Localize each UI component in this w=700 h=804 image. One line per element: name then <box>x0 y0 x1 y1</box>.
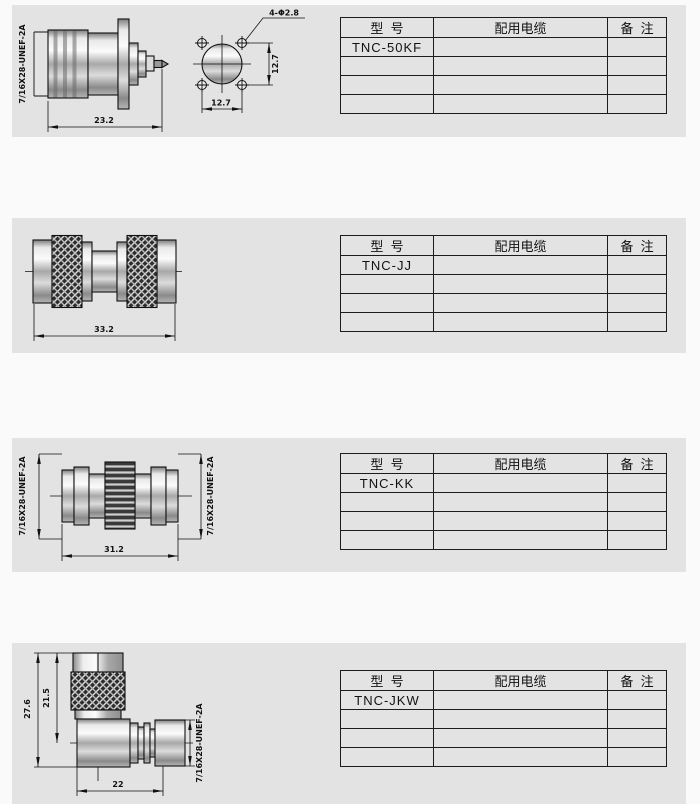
section-tnc-kk: 7/16X28-UNEF-2A 7/16X28-UNEF-2A 31.2 <box>12 438 686 572</box>
axis-height-dim-label: 21.5 <box>42 688 51 708</box>
table-row <box>341 710 667 729</box>
remarks-cell <box>608 313 667 332</box>
tnc-50kf-drawing: 7/16X28-UNEF-2A 23.2 <box>12 5 342 137</box>
table-header-row: 型 号 配用电缆 备 注 <box>341 454 667 474</box>
remarks-cell <box>608 748 667 767</box>
tnc-kk-spec-table: 型 号 配用电缆 备 注 TNC-KK <box>340 453 667 550</box>
height-dim-label: 27.6 <box>23 699 32 719</box>
side-view <box>48 19 168 109</box>
model-cell <box>341 531 434 550</box>
section-tnc-jkw: 27.6 21.5 22 7/16X28-UNEF-2A 型 号 配用电缆 备 … <box>12 643 686 804</box>
table-row <box>341 76 667 95</box>
cable-cell <box>434 729 608 748</box>
model-cell <box>341 294 434 313</box>
remarks-cell <box>608 95 667 114</box>
tnc-jj-spec-table: 型 号 配用电缆 备 注 TNC-JJ <box>340 235 667 332</box>
table-header-row: 型 号 配用电缆 备 注 <box>341 18 667 38</box>
cable-cell <box>434 313 608 332</box>
header-cable: 配用电缆 <box>434 236 608 256</box>
section-tnc-50kf: 7/16X28-UNEF-2A 23.2 <box>12 5 686 137</box>
model-cell: TNC-50KF <box>341 38 434 57</box>
model-cell: TNC-JKW <box>341 691 434 710</box>
cable-cell <box>434 95 608 114</box>
remarks-cell <box>608 294 667 313</box>
model-cell <box>341 748 434 767</box>
tnc-jkw-drawing: 27.6 21.5 22 7/16X28-UNEF-2A <box>12 643 342 804</box>
thread-label-right: 7/16X28-UNEF-2A <box>206 456 215 536</box>
header-model: 型 号 <box>341 18 434 38</box>
header-remarks: 备 注 <box>608 18 667 38</box>
cable-cell <box>434 275 608 294</box>
adapter-body <box>33 236 176 308</box>
cable-cell <box>434 76 608 95</box>
thread-label: 7/16X28-UNEF-2A <box>18 24 27 104</box>
table-header-row: 型 号 配用电缆 备 注 <box>341 671 667 691</box>
header-model: 型 号 <box>341 454 434 474</box>
length-dim-label: 31.2 <box>104 545 124 554</box>
hole-callout-label: 4-Φ2.8 <box>269 9 299 18</box>
section-tnc-jj: 33.2 型 号 配用电缆 备 注 TNC-JJ <box>12 218 686 353</box>
remarks-cell <box>608 729 667 748</box>
cable-cell <box>434 38 608 57</box>
length-dimension <box>34 304 175 341</box>
table-row <box>341 729 667 748</box>
length-dim-label: 22 <box>112 780 123 789</box>
remarks-cell <box>608 256 667 275</box>
cable-cell <box>434 256 608 275</box>
header-cable: 配用电缆 <box>434 671 608 691</box>
connector-body <box>71 653 185 767</box>
hole-pitch-v-label: 12.7 <box>271 54 280 74</box>
cable-cell <box>434 748 608 767</box>
remarks-cell <box>608 474 667 493</box>
remarks-cell <box>608 57 667 76</box>
cable-cell <box>434 512 608 531</box>
model-cell <box>341 57 434 76</box>
table-row <box>341 294 667 313</box>
header-model: 型 号 <box>341 671 434 691</box>
model-cell <box>341 710 434 729</box>
table-row: TNC-KK <box>341 474 667 493</box>
model-cell <box>341 729 434 748</box>
remarks-cell <box>608 710 667 729</box>
tnc-50kf-spec-table: 型 号 配用电缆 备 注 TNC-50KF <box>340 17 667 114</box>
thread-label: 7/16X28-UNEF-2A <box>195 703 204 783</box>
remarks-cell <box>608 38 667 57</box>
adapter-body <box>62 462 178 529</box>
remarks-cell <box>608 275 667 294</box>
cable-cell <box>434 294 608 313</box>
table-header-row: 型 号 配用电缆 备 注 <box>341 236 667 256</box>
model-cell <box>341 512 434 531</box>
table-row: TNC-JKW <box>341 691 667 710</box>
cable-cell <box>434 691 608 710</box>
model-cell <box>341 275 434 294</box>
table-row <box>341 275 667 294</box>
table-row <box>341 57 667 76</box>
length-dim-label: 33.2 <box>94 325 114 334</box>
model-cell: TNC-KK <box>341 474 434 493</box>
table-row: TNC-JJ <box>341 256 667 275</box>
thread-bracket-right <box>178 454 201 539</box>
cable-cell <box>434 57 608 76</box>
remarks-cell <box>608 531 667 550</box>
table-row <box>341 493 667 512</box>
model-cell <box>341 95 434 114</box>
header-remarks: 备 注 <box>608 236 667 256</box>
hole-pitch-h-label: 12.7 <box>211 99 231 108</box>
tnc-jkw-spec-table: 型 号 配用电缆 备 注 TNC-JKW <box>340 670 667 767</box>
table-row <box>341 95 667 114</box>
header-cable: 配用电缆 <box>434 454 608 474</box>
table-row: TNC-50KF <box>341 38 667 57</box>
remarks-cell <box>608 512 667 531</box>
table-row <box>341 531 667 550</box>
tnc-kk-drawing: 7/16X28-UNEF-2A 7/16X28-UNEF-2A 31.2 <box>12 438 342 572</box>
length-dim-label: 23.2 <box>94 116 114 125</box>
table-row <box>341 313 667 332</box>
header-remarks: 备 注 <box>608 454 667 474</box>
remarks-cell <box>608 76 667 95</box>
header-cable: 配用电缆 <box>434 18 608 38</box>
model-cell <box>341 493 434 512</box>
table-row <box>341 748 667 767</box>
remarks-cell <box>608 493 667 512</box>
hole-callout-leader <box>245 18 305 41</box>
table-row <box>341 512 667 531</box>
thread-bracket-left <box>39 454 62 539</box>
cable-cell <box>434 474 608 493</box>
header-remarks: 备 注 <box>608 671 667 691</box>
cable-cell <box>434 493 608 512</box>
front-view <box>193 35 251 93</box>
remarks-cell <box>608 691 667 710</box>
cable-cell <box>434 531 608 550</box>
thread-label-left: 7/16X28-UNEF-2A <box>18 456 27 536</box>
model-cell <box>341 76 434 95</box>
tnc-jj-drawing: 33.2 <box>12 218 342 353</box>
model-cell <box>341 313 434 332</box>
cable-cell <box>434 710 608 729</box>
header-model: 型 号 <box>341 236 434 256</box>
model-cell: TNC-JJ <box>341 256 434 275</box>
